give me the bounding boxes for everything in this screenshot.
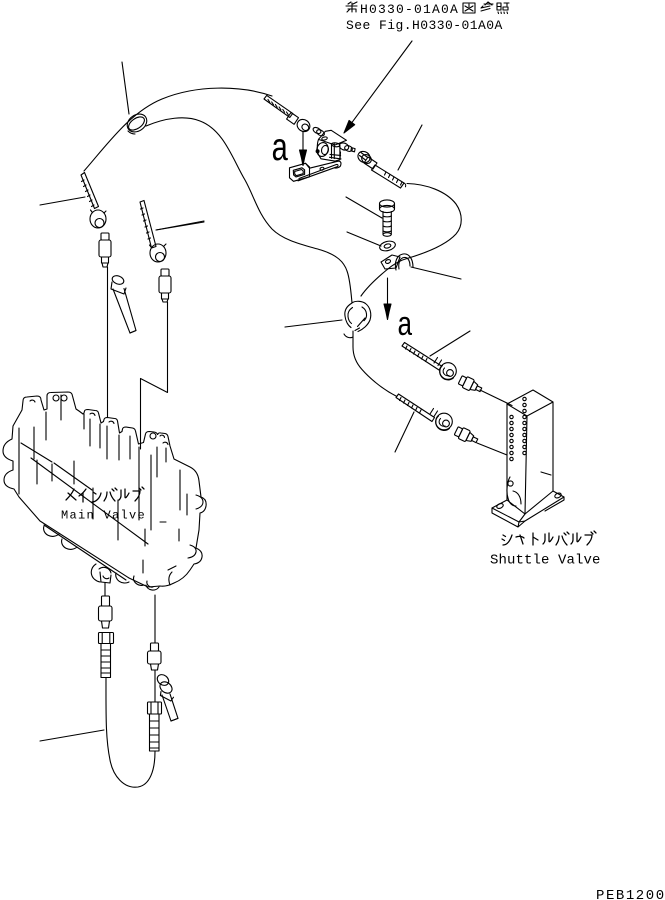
svg-text:Shuttle Valve: Shuttle Valve xyxy=(490,553,601,569)
svg-text:PEB1200: PEB1200 xyxy=(596,888,665,900)
svg-text:a: a xyxy=(397,308,413,346)
svg-text:H0330-01A0A: H0330-01A0A xyxy=(360,2,459,17)
svg-text:See Fig.H0330-01A0A: See Fig.H0330-01A0A xyxy=(346,18,503,33)
svg-text:a: a xyxy=(271,128,289,172)
svg-text:Main Valve: Main Valve xyxy=(61,509,146,523)
